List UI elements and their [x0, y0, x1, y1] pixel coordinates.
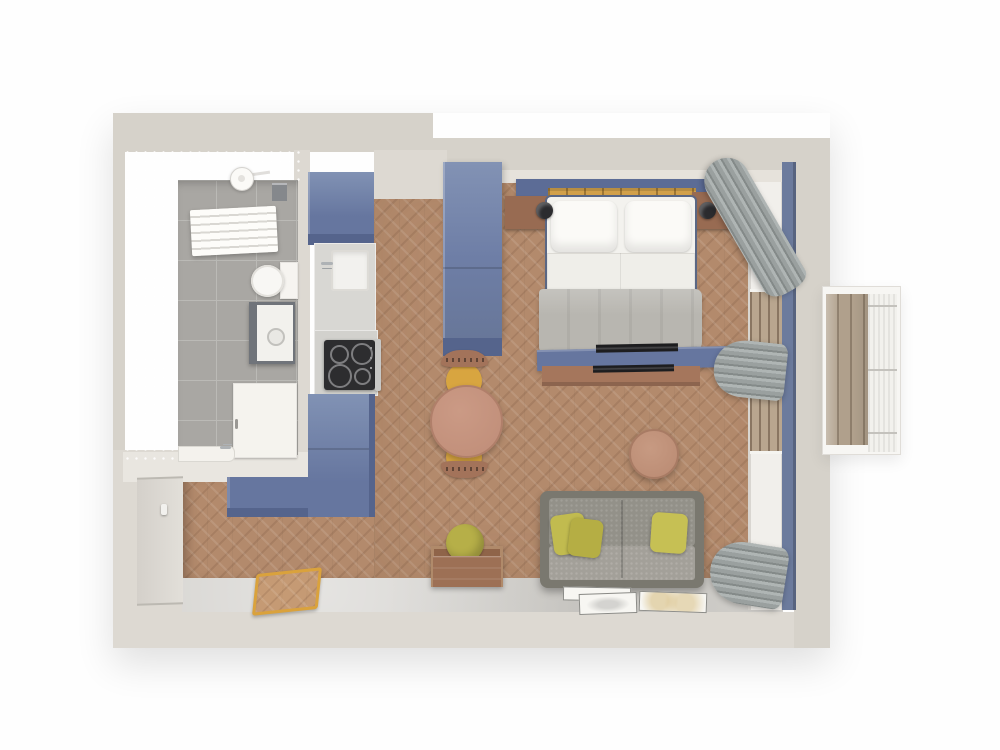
dining-table [430, 385, 503, 458]
dining-chair-back-top [441, 350, 488, 367]
kitchen-faucet [321, 262, 333, 265]
bed-pillow-left [551, 201, 617, 252]
bathroom-wall-bright-left [123, 148, 180, 460]
cooktop-burner-2 [328, 364, 352, 388]
kitchen-tall-cabinet [308, 172, 374, 234]
wall-bottom [113, 612, 830, 648]
sofa-center-seam [621, 500, 623, 578]
coffee-table [629, 429, 679, 479]
kitchen-base-cabinet [308, 394, 375, 517]
bathroom-wall-shelf [272, 183, 287, 201]
window-wood-slats-2 [750, 396, 783, 451]
cooktop-controls [370, 347, 372, 377]
cooktop-burner-1 [330, 345, 349, 364]
balcony-rail-2 [868, 369, 897, 371]
balcony-rail-1 [868, 305, 897, 307]
flat-tv-stand [593, 364, 674, 372]
bathroom-cabinet-door [233, 383, 297, 458]
shower-head-center [238, 175, 245, 182]
wall-top-left [113, 113, 433, 152]
wall-kitchen-recess [374, 150, 447, 199]
bed-pillow-right [625, 201, 691, 252]
gold-doormat [252, 567, 322, 616]
storage-box-front [433, 556, 501, 587]
kitchen-base-cabinet-seam [308, 448, 375, 450]
cooktop-burner-4 [354, 368, 371, 385]
bedside-lamp-left [536, 202, 553, 219]
kitchen-sink [331, 250, 369, 291]
bathroom-faucet [220, 446, 231, 449]
kitchen-base-cabinet-side [369, 394, 375, 517]
floor-plan-render [0, 0, 1000, 750]
balcony-rail-3 [868, 432, 897, 434]
towel-radiator [190, 206, 278, 256]
entrance-door-handle [161, 504, 167, 515]
bed-sheet-center-seam [620, 253, 621, 293]
oven-handle [375, 339, 381, 391]
washing-machine-door [267, 328, 285, 346]
bathroom-cabinet-handle [235, 419, 238, 429]
sofa-pillow-3 [650, 512, 689, 554]
floor-paper-2 [579, 592, 638, 615]
flat-tv-frame [596, 343, 678, 352]
balcony-deck [826, 294, 868, 445]
floor-paper-3 [639, 591, 708, 613]
sofa-pillow-2 [567, 517, 604, 559]
bed-sheet-fold [547, 253, 695, 294]
window-wood-slats-1 [750, 292, 783, 348]
wardrobe [443, 162, 502, 338]
balcony-railing [868, 294, 897, 452]
toilet-bowl [251, 265, 284, 297]
wardrobe-seam [443, 267, 502, 269]
kitchen-corner-cabinet-front [227, 508, 308, 517]
entrance-door [137, 476, 183, 606]
